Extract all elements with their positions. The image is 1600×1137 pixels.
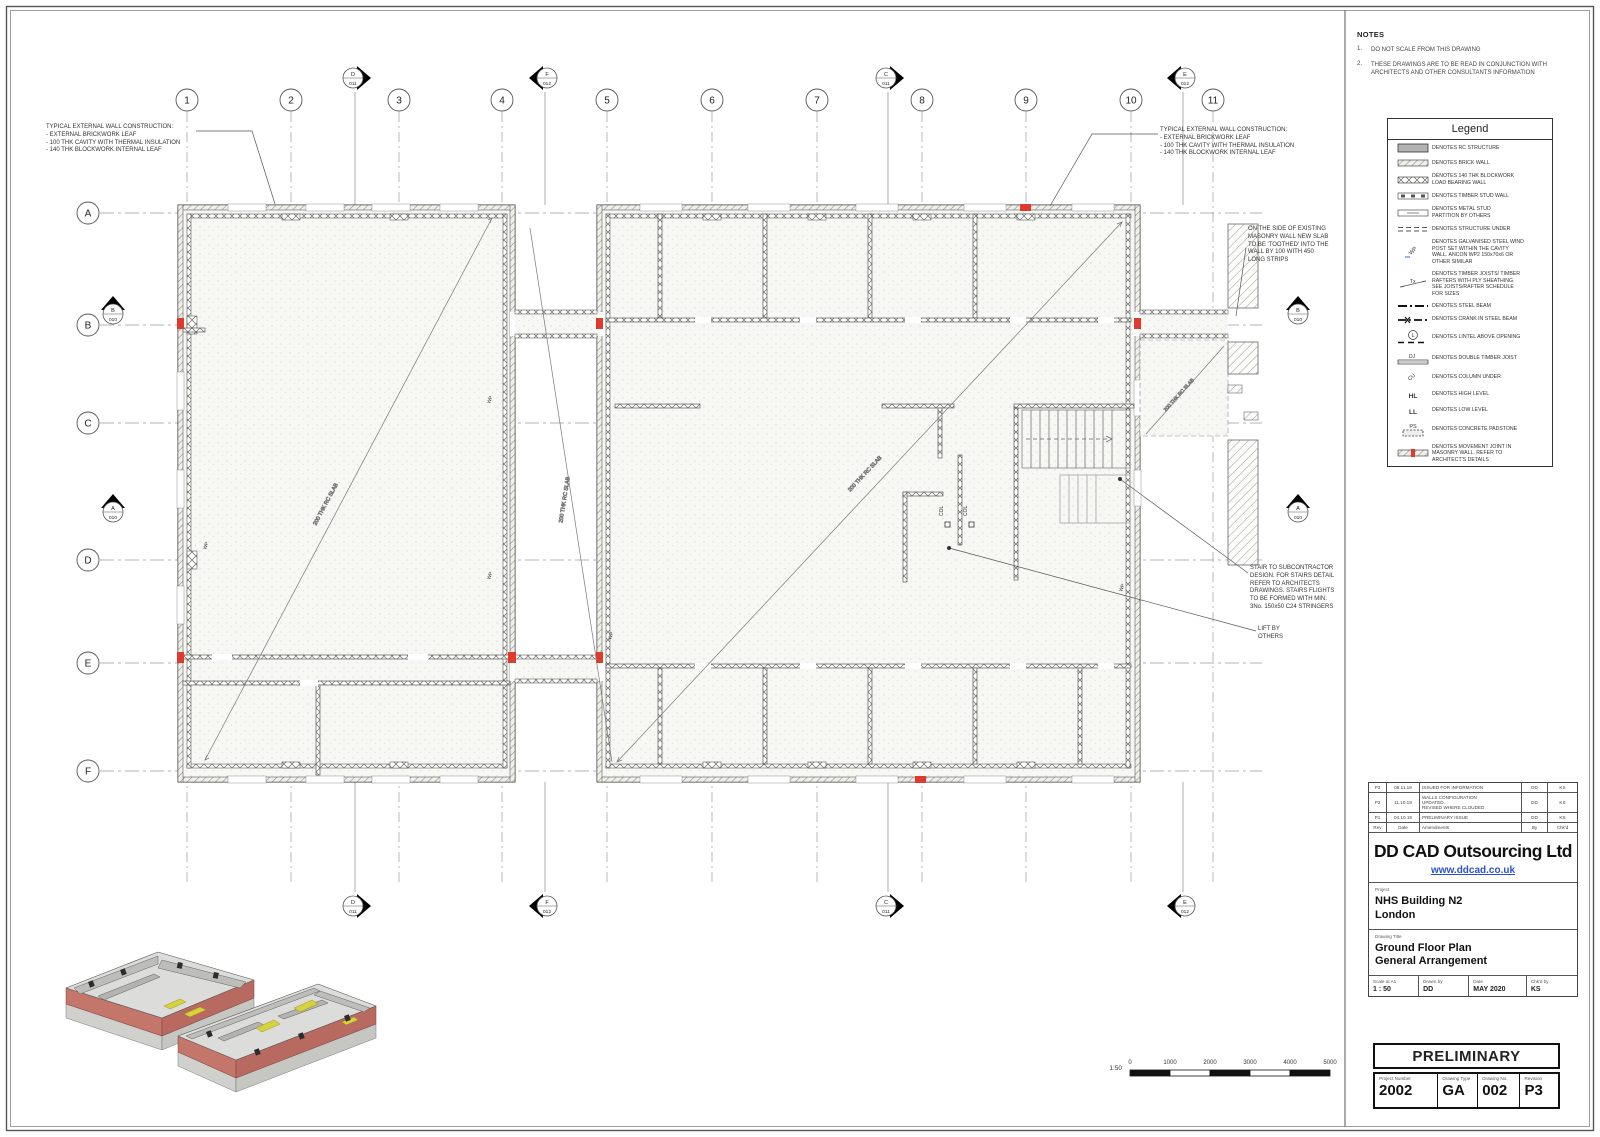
legend-item: LL DENOTES LOW LEVEL: [1388, 403, 1552, 419]
project-name: NHS Building N2 London: [1375, 895, 1571, 923]
double-timber-joist-icon: DJ: [1394, 352, 1432, 366]
svg-text:10: 10: [1125, 96, 1137, 107]
svg-text:HL: HL: [1409, 393, 1418, 400]
corridor-links: [510, 310, 605, 683]
svg-text:010: 010: [109, 317, 117, 323]
svg-text:012: 012: [1181, 909, 1189, 915]
svg-text:D: D: [351, 72, 355, 78]
svg-text:C: C: [84, 419, 91, 430]
project-section: Project NHS Building N2 London: [1369, 883, 1577, 930]
project-number: 2002: [1379, 1082, 1433, 1099]
legend-item: HL DENOTES HIGH LEVEL: [1388, 387, 1552, 403]
svg-text:E: E: [1183, 900, 1187, 906]
svg-text:012: 012: [1181, 81, 1189, 87]
svg-text:4: 4: [499, 96, 505, 107]
brick-wall-icon: [1394, 159, 1432, 167]
low-level-icon: LL: [1394, 406, 1432, 416]
notes-title: NOTES: [1357, 30, 1572, 39]
drawing-sheet: { "colors": {"accent_red": "#e03a2f", "u…: [0, 0, 1600, 1137]
legend-item: DENOTES CRANK IN STEEL BEAM: [1388, 313, 1552, 327]
company-website-link[interactable]: www.ddcad.co.uk: [1371, 865, 1575, 876]
svg-text:2000: 2000: [1203, 1060, 1217, 1066]
col-label: COL: [963, 506, 969, 517]
svg-text:9: 9: [1023, 96, 1029, 107]
svg-text:11: 11: [1208, 96, 1219, 107]
svg-text:2: 2: [288, 96, 294, 107]
svg-text:010: 010: [1294, 515, 1302, 521]
svg-text:011: 011: [882, 909, 890, 915]
date-value: MAY 2020: [1473, 986, 1522, 993]
svg-text:7: 7: [814, 96, 820, 107]
crank-steel-beam-icon: [1394, 316, 1432, 324]
svg-text:011: 011: [349, 909, 357, 915]
wall-construction-note-left: TYPICAL EXTERNAL WALL CONSTRUCTION: - EX…: [46, 124, 211, 155]
drawing-title-label: Drawing Title: [1375, 934, 1571, 939]
isometric-3d-view: [66, 952, 376, 1092]
svg-text:3000: 3000: [1243, 1060, 1257, 1066]
title-block: P3 06.11.19 ISSUED FOR INFORMATION DD KS…: [1368, 782, 1578, 997]
svg-text:E: E: [85, 659, 92, 670]
svg-text:A: A: [1296, 506, 1300, 512]
svg-text:A: A: [85, 209, 92, 220]
svg-text:010: 010: [1294, 317, 1302, 323]
svg-text:0: 0: [1128, 1060, 1132, 1066]
drawing-type: GA: [1442, 1082, 1473, 1099]
svg-text:3: 3: [396, 96, 402, 107]
svg-text:011: 011: [349, 81, 357, 87]
svg-text:L: L: [1411, 333, 1414, 339]
note-item: 2. THESE DRAWINGS ARE TO BE READ IN CONJ…: [1357, 61, 1572, 77]
drawn-by-value: DD: [1423, 986, 1464, 993]
svg-text:8: 8: [919, 96, 925, 107]
legend-item: DENOTES METAL STUD PARTITION BY OTHERS: [1388, 203, 1552, 222]
title-block-panel: NOTES 1. DO NOT SCALE FROM THIS DRAWING …: [1345, 10, 1592, 1127]
legend-item: DENOTES BRICK WALL: [1388, 156, 1552, 170]
toothed-slab-note: ON THE SIDE OF EXISTING MASONRY WALL NEW…: [1248, 226, 1348, 265]
svg-text:010: 010: [109, 515, 117, 521]
svg-text:E: E: [1183, 72, 1187, 78]
legend-item: DJ DENOTES DOUBLE TIMBER JOIST: [1388, 349, 1552, 369]
legend-item: DENOTES TIMBER STUD WALL: [1388, 189, 1552, 203]
legend: Legend DENOTES RC STRUCTURE DENOTES BRIC…: [1387, 118, 1553, 467]
svg-text:F: F: [85, 767, 91, 778]
east-link-existing: [1133, 224, 1258, 565]
grid-row-bubbles: A B C D E F: [77, 202, 99, 782]
revision-table: P3 06.11.19 ISSUED FOR INFORMATION DD KS…: [1369, 783, 1577, 833]
legend-item: Tx DENOTES TIMBER JOISTS/ TIMBER RAFTERS…: [1388, 268, 1552, 300]
svg-text:012: 012: [543, 909, 551, 915]
drawing-number: 002: [1482, 1082, 1515, 1099]
timber-joists-icon: Tx: [1394, 277, 1432, 291]
svg-text:C: C: [884, 72, 888, 78]
svg-text:WP: WP: [1408, 246, 1419, 257]
blockwork-wall-icon: [1394, 176, 1432, 184]
legend-item: DENOTES 140 THK BLOCKWORK LOAD BEARING W…: [1388, 170, 1552, 189]
lift-note: LIFT BY OTHERS: [1258, 626, 1318, 642]
legend-item: DENOTES STRUCTURE UNDER: [1388, 222, 1552, 236]
structure-under-icon: [1394, 225, 1432, 233]
svg-text:DJ: DJ: [1409, 354, 1416, 360]
revision-value: P3: [1524, 1082, 1554, 1099]
legend-item: DENOTES RC STRUCTURE: [1388, 140, 1552, 156]
svg-text:6: 6: [709, 96, 715, 107]
svg-text:A: A: [111, 506, 115, 512]
legend-item: PS DENOTES CONCRETE PADSTONE: [1388, 419, 1552, 441]
scale-bar: 1:50 0 1000 2000 3000 4000 5000: [1109, 1060, 1337, 1076]
svg-text:D: D: [351, 900, 355, 906]
svg-text:B: B: [85, 321, 92, 332]
drawing-title: Ground Floor Plan General Arrangement: [1375, 942, 1571, 970]
scale-value: 1 : 50: [1373, 986, 1414, 993]
svg-text:LL: LL: [1409, 409, 1417, 416]
drawing-meta-row: Scale at A1 1 : 50 Drawn by DD Date MAY …: [1369, 976, 1577, 996]
column-under-icon: CU: [1394, 372, 1432, 384]
legend-item: CU DENOTES COLUMN UNDER: [1388, 369, 1552, 387]
svg-text:C: C: [884, 900, 888, 906]
project-label: Project: [1375, 887, 1571, 892]
movement-joint-icon: [1394, 448, 1432, 458]
legend-item: DENOTES STEEL BEAM: [1388, 300, 1552, 313]
svg-text:PS: PS: [1409, 424, 1417, 430]
rc-structure-icon: [1394, 143, 1432, 153]
concrete-padstone-icon: PS: [1394, 422, 1432, 438]
status-banner: PRELIMINARY: [1373, 1043, 1560, 1069]
wall-construction-note-right: TYPICAL EXTERNAL WALL CONSTRUCTION: - EX…: [1160, 127, 1325, 158]
svg-text:B: B: [1296, 308, 1300, 314]
svg-text:4000: 4000: [1283, 1060, 1297, 1066]
svg-text:012: 012: [543, 81, 551, 87]
col-label: COL: [939, 506, 945, 517]
svg-text:1: 1: [184, 96, 190, 107]
svg-text:5: 5: [604, 96, 610, 107]
company-logo: DD CAD Outsourcing Ltd: [1371, 841, 1575, 862]
high-level-icon: HL: [1394, 390, 1432, 400]
svg-text:1000: 1000: [1163, 1060, 1177, 1066]
slab-label: 200 THK RC SLAB: [558, 476, 571, 523]
note-item: 1. DO NOT SCALE FROM THIS DRAWING: [1357, 46, 1572, 54]
svg-text:D: D: [84, 556, 91, 567]
svg-text:B: B: [111, 308, 115, 314]
wind-post-icon: WP: [1394, 243, 1432, 261]
legend-item: DENOTES MOVEMENT JOINT IN MASONRY WALL. …: [1388, 441, 1552, 467]
svg-text:011: 011: [882, 81, 890, 87]
company-block: DD CAD Outsourcing Ltd www.ddcad.co.uk: [1369, 833, 1577, 883]
legend-title: Legend: [1388, 119, 1552, 140]
building-plan: COL COL: [177, 131, 1258, 783]
drawing-title-section: Drawing Title Ground Floor Plan General …: [1369, 930, 1577, 977]
scale-ratio: 1:50: [1109, 1065, 1122, 1072]
metal-stud-partition-icon: [1394, 209, 1432, 217]
drawing-number-row: Project Number 2002 Drawing Type GA Draw…: [1373, 1072, 1560, 1109]
svg-text:5000: 5000: [1323, 1060, 1337, 1066]
svg-text:Tx: Tx: [1410, 279, 1416, 285]
checked-by-value: KS: [1531, 986, 1573, 993]
lintel-icon: L: [1394, 330, 1432, 346]
notes-section: NOTES 1. DO NOT SCALE FROM THIS DRAWING …: [1357, 30, 1572, 77]
legend-item: WP DENOTES GALVANISED STEEL WIND POST SE…: [1388, 236, 1552, 268]
grid-column-bubbles: 1 2 3 4 5 6 7 8 9 10 11: [176, 89, 1224, 111]
timber-stud-wall-icon: [1394, 192, 1432, 200]
legend-item: L DENOTES LINTEL ABOVE OPENING: [1388, 327, 1552, 349]
steel-beam-icon: [1394, 303, 1432, 309]
stair-note: STAIR TO SUBCONTRACTOR DESIGN. FOR STAIR…: [1250, 565, 1360, 612]
svg-text:CU: CU: [1407, 372, 1417, 382]
